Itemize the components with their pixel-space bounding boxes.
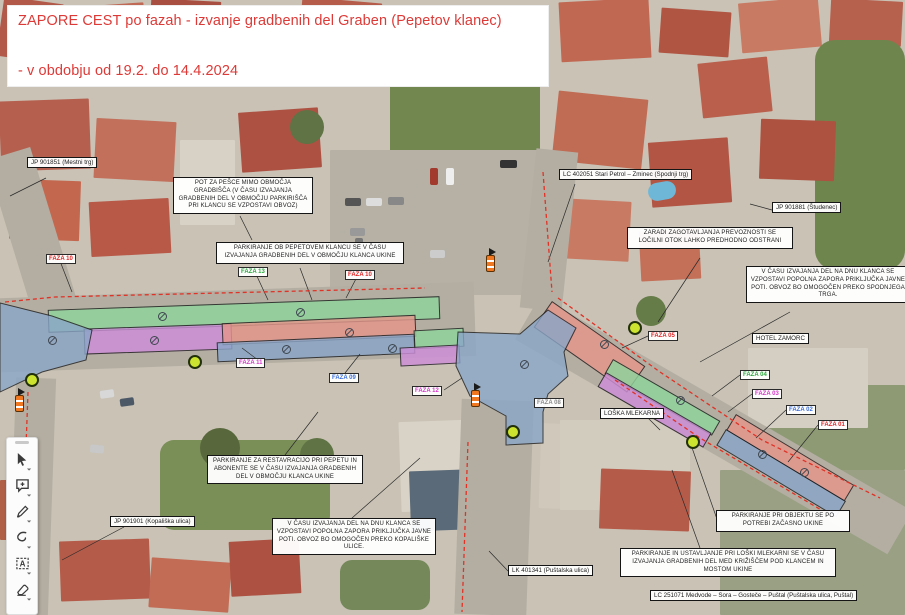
- no-stopping-icon: [282, 345, 291, 354]
- submenu-arrow-icon: [25, 594, 31, 600]
- phase-label-faza05: FAZA 05: [648, 331, 678, 341]
- phase-label-faza11: FAZA 11: [236, 358, 265, 368]
- road-label-jp901851: JP 901851 (Mestni trg): [27, 157, 97, 168]
- aerial-photo-feature: [350, 228, 365, 236]
- phase-label-faza03: FAZA 03: [752, 389, 782, 399]
- place-label-loska-mlekarna: LOŠKA MLEKARNA: [600, 408, 664, 419]
- aerial-photo-feature: [148, 557, 231, 612]
- no-stopping-icon: [520, 360, 529, 369]
- aerial-photo-feature: [748, 348, 868, 428]
- aerial-photo-feature: [500, 160, 517, 168]
- note-zapora-kopaliska: V ČASU IZVAJANJA DEL NA DNU KLANCA SE VZ…: [272, 518, 436, 555]
- cone-body: [471, 390, 480, 407]
- no-stopping-icon: [296, 308, 305, 317]
- no-stopping-icon: [388, 344, 397, 353]
- aerial-photo-feature: [345, 198, 361, 206]
- aerial-photo-feature: [759, 119, 836, 182]
- phase-label-faza10-a: FAZA 10: [46, 254, 76, 264]
- note-parking-objekt: PARKIRANJE PRI OBJEKTU SE PO POTREBI ZAČ…: [716, 510, 850, 532]
- comment-tool-button[interactable]: [11, 472, 33, 498]
- note-parking-mlekarna: PARKIRANJE IN USTAVLJANJE PRI LOŠKI MLEK…: [620, 548, 836, 577]
- submenu-arrow-icon: [25, 464, 31, 470]
- aerial-photo-feature: [89, 198, 172, 257]
- aerial-photo-feature: [430, 250, 445, 258]
- leader-line: [240, 216, 252, 240]
- note-parking-pepetov-klanec: PARKIRANJE OB PEPETOVEM KLANCU SE V ČASU…: [216, 242, 404, 264]
- map-title-box: ZAPORE CEST po fazah - izvanje gradbenih…: [8, 6, 548, 86]
- phase-label-faza01: FAZA 01: [818, 420, 848, 430]
- aerial-photo-feature: [388, 197, 404, 205]
- aerial-photo-feature: [446, 168, 454, 185]
- road-label-lk401341: LK 401341 (Puštalska ulica): [508, 565, 593, 576]
- road-label-lc251071: LC 251071 Medvode – Sora – Gosteče – Puš…: [650, 590, 857, 601]
- no-stopping-icon: [48, 336, 57, 345]
- aerial-photo-feature: [599, 468, 691, 531]
- pedestrian-route-marker: [25, 373, 39, 387]
- road-label-jp901901: JP 901901 (Kopališka ulica): [110, 516, 195, 527]
- leader-line: [750, 204, 772, 210]
- leader-line: [444, 378, 462, 390]
- no-stopping-icon: [758, 450, 767, 459]
- no-stopping-icon: [676, 396, 685, 405]
- aerial-photo-feature: [636, 296, 666, 326]
- map-subtitle-period: - v obdobju od 19.2. do 14.4.2024: [18, 63, 538, 79]
- phase-label-faza09: FAZA 09: [329, 373, 359, 383]
- aerial-photo-feature: [340, 560, 430, 610]
- cone-body: [15, 395, 24, 412]
- phase-label-faza10-b: FAZA 10: [345, 270, 375, 280]
- aerial-photo-feature: [659, 8, 732, 58]
- aerial-photo-feature: [100, 389, 115, 399]
- traffic-cone-icon: [485, 250, 494, 270]
- road-label-jp901881: JP 901881 (Študenec): [772, 202, 841, 213]
- submenu-arrow-icon: [25, 516, 31, 522]
- road-south: [454, 399, 533, 615]
- highlight-tool-button[interactable]: [11, 524, 33, 550]
- phase-label-faza13: FAZA 13: [238, 267, 268, 277]
- phase-label-faza02: FAZA 02: [786, 405, 816, 415]
- text-tool-button[interactable]: A: [11, 550, 33, 576]
- pen-tool-button[interactable]: [11, 498, 33, 524]
- no-stopping-icon: [600, 340, 609, 349]
- no-stopping-icon: [150, 336, 159, 345]
- traffic-cone-icon: [470, 385, 479, 405]
- no-stopping-icon: [345, 328, 354, 337]
- aerial-photo-feature: [59, 538, 151, 601]
- phase-band-faza-12-purple-short: [400, 344, 461, 366]
- select-tool-button[interactable]: [11, 446, 33, 472]
- note-locilni-otok: ZARADI ZAGOTAVLJANJA PREVOZNOSTI SE LOČI…: [627, 227, 793, 249]
- pedestrian-route-marker: [188, 355, 202, 369]
- aerial-photo-feature: [120, 397, 135, 407]
- erase-tool-button[interactable]: [11, 576, 33, 602]
- road-closure-map: ZAPORE CEST po fazah - izvanje gradbenih…: [0, 0, 905, 615]
- aerial-photo-feature: [290, 110, 324, 144]
- phase-label-faza12: FAZA 12: [412, 386, 442, 396]
- svg-text:A: A: [19, 559, 25, 568]
- toolbar-drag-handle[interactable]: [15, 441, 29, 444]
- leader-line: [712, 375, 740, 396]
- aerial-photo-feature: [558, 0, 651, 62]
- annotation-toolbar: A: [6, 437, 38, 615]
- note-zapora-spodnji-trg: V ČASU IZVAJANJA DEL NA DNU KLANCA SE VZ…: [746, 266, 905, 303]
- phase-label-faza04: FAZA 04: [740, 370, 770, 380]
- aerial-photo-feature: [93, 118, 176, 182]
- no-stopping-icon: [800, 468, 809, 477]
- submenu-arrow-icon: [25, 568, 31, 574]
- traffic-cone-icon: [14, 390, 23, 410]
- map-title: ZAPORE CEST po fazah - izvanje gradbenih…: [18, 13, 538, 29]
- pedestrian-route-marker: [506, 425, 520, 439]
- aerial-photo-feature: [738, 0, 822, 53]
- note-pedestrian-path: POT ZA PEŠCE MIMO OBMOČJA GRADBIŠČA (V Č…: [173, 177, 313, 214]
- submenu-arrow-icon: [25, 542, 31, 548]
- road-label-lc402051: LC 402051 Stari Petrol – Zminec (Spodnji…: [559, 169, 692, 180]
- place-label-hotel-zamorc: HOTEL ZAMORC: [752, 333, 809, 344]
- pedestrian-route-marker: [686, 435, 700, 449]
- submenu-arrow-icon: [25, 490, 31, 496]
- note-parking-restavracija: PARKIRANJE ZA RESTAVRACIJO PRI PEPETU IN…: [207, 455, 363, 484]
- no-stopping-icon: [158, 312, 167, 321]
- pedestrian-route-marker: [628, 321, 642, 335]
- aerial-photo-feature: [366, 198, 382, 206]
- aerial-photo-feature: [90, 444, 105, 453]
- aerial-photo-feature: [430, 168, 438, 185]
- aerial-photo-feature: [697, 56, 772, 118]
- phase-label-faza08: FAZA 08: [534, 398, 564, 408]
- cone-body: [486, 255, 495, 272]
